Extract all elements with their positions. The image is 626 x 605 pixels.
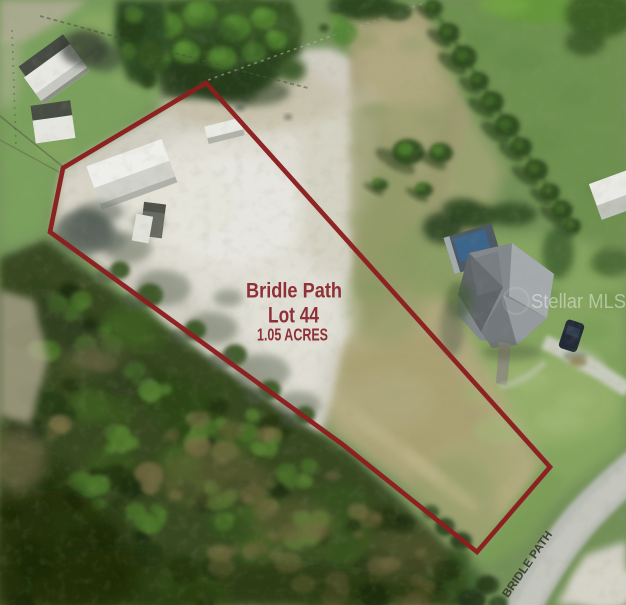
svg-text:Bridle Path: Bridle Path [246, 280, 342, 303]
svg-text:1.05 ACRES: 1.05 ACRES [257, 325, 328, 345]
svg-text:Stellar MLS: Stellar MLS [531, 291, 626, 313]
